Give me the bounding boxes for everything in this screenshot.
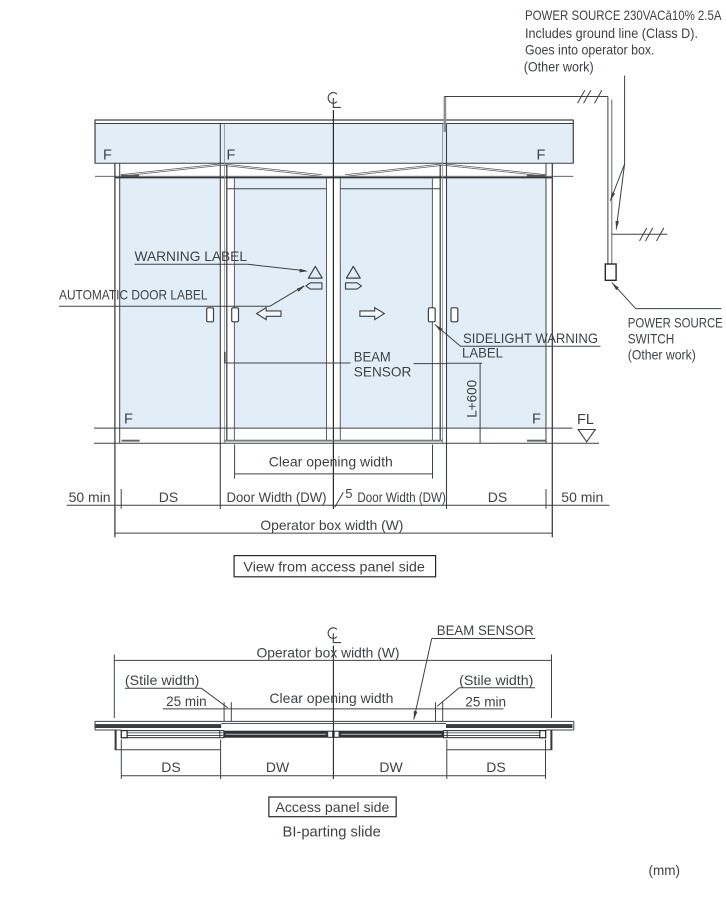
svg-text:25 min: 25 min [166,693,207,709]
svg-text:F: F [532,412,541,428]
svg-text:DS: DS [488,489,507,505]
svg-text:F: F [103,148,112,164]
svg-text:Includes ground line (Class D): Includes ground line (Class D). [525,25,698,41]
svg-text:25 min: 25 min [465,693,506,709]
svg-text:DW: DW [379,759,403,775]
svg-text:F: F [537,148,546,164]
svg-text:Clear opening width: Clear opening width [269,453,393,469]
svg-text:LABEL: LABEL [462,345,503,361]
svg-text:Operator box width (W): Operator box width (W) [260,517,403,533]
svg-text:Door Width (DW): Door Width (DW) [357,489,446,505]
svg-text:(Other work): (Other work) [628,346,696,362]
svg-text:50 min: 50 min [69,489,111,505]
svg-text:5: 5 [345,486,352,501]
svg-text:(mm): (mm) [649,862,681,878]
svg-text:WARNING LABEL: WARNING LABEL [135,248,248,264]
svg-text:FL: FL [577,412,594,428]
svg-text:DW: DW [266,759,290,775]
svg-text:(Stile width): (Stile width) [125,672,199,688]
svg-text:DS: DS [161,759,180,775]
svg-text:Door Width (DW): Door Width (DW) [227,489,327,505]
svg-text:Access panel side: Access panel side [275,799,389,815]
svg-text:BI-parting slide: BI-parting slide [283,825,381,841]
svg-text:SWITCH: SWITCH [628,330,675,346]
svg-text:BEAM SENSOR: BEAM SENSOR [437,622,534,638]
svg-text:BEAM: BEAM [354,348,391,364]
svg-text:Goes into operator box.: Goes into operator box. [525,41,655,57]
svg-text:View from access panel side: View from access panel side [243,558,425,574]
svg-text:AUTOMATIC DOOR LABEL: AUTOMATIC DOOR LABEL [59,287,208,303]
svg-text:DS: DS [486,759,505,775]
svg-text:F: F [124,412,133,428]
svg-text:POWER SOURCE 230VACā10% 2.5A: POWER SOURCE 230VACā10% 2.5A [525,7,722,23]
svg-text:(Other work): (Other work) [524,58,594,74]
svg-text:DS: DS [159,489,178,505]
svg-text:SENSOR: SENSOR [354,363,412,379]
svg-text:F: F [227,148,236,164]
svg-text:Operator box width (W): Operator box width (W) [257,644,400,660]
svg-text:50 min: 50 min [561,489,603,505]
svg-text:Clear opening width: Clear opening width [269,690,393,706]
svg-text:(Stile width): (Stile width) [459,672,533,688]
svg-text:L+600: L+600 [463,380,479,418]
svg-text:POWER SOURCE: POWER SOURCE [628,314,723,330]
